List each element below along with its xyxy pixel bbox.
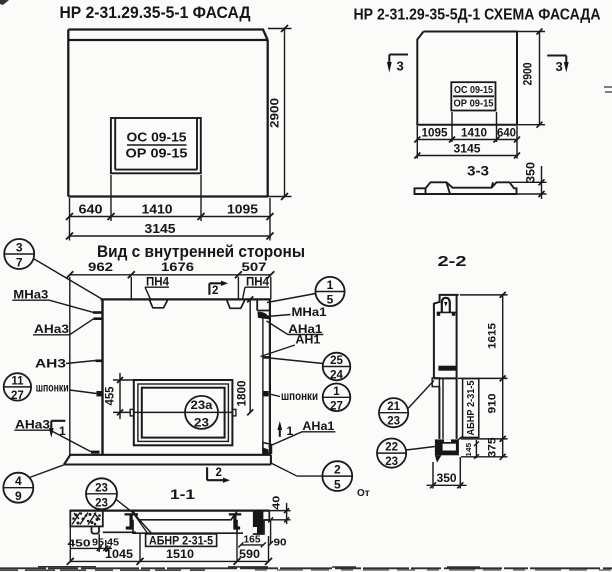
svg-text:21: 21 bbox=[387, 401, 400, 413]
svg-text:24: 24 bbox=[330, 370, 343, 382]
svg-text:23: 23 bbox=[95, 482, 108, 494]
svg-text:МНа3: МНа3 bbox=[13, 288, 48, 302]
svg-text:АН1: АН1 bbox=[295, 333, 320, 347]
svg-text:375: 375 bbox=[487, 438, 499, 458]
svg-text:455: 455 bbox=[105, 386, 117, 406]
svg-text:3: 3 bbox=[397, 59, 404, 74]
svg-text:1-1: 1-1 bbox=[170, 486, 195, 502]
svg-text:1: 1 bbox=[333, 386, 340, 398]
svg-text:1: 1 bbox=[59, 424, 66, 438]
svg-text:АНа3: АНа3 bbox=[15, 418, 50, 432]
svg-text:1410: 1410 bbox=[142, 203, 173, 217]
svg-text:1410: 1410 bbox=[461, 128, 487, 140]
svg-text:3-3: 3-3 bbox=[467, 163, 489, 179]
svg-text:23: 23 bbox=[95, 497, 108, 509]
svg-text:962: 962 bbox=[88, 260, 113, 274]
svg-text:23: 23 bbox=[387, 416, 400, 428]
svg-text:Вид с внутренней стороны: Вид с внутренней стороны bbox=[97, 243, 305, 261]
svg-text:25: 25 bbox=[330, 355, 343, 367]
svg-text:2: 2 bbox=[334, 463, 341, 477]
svg-text:11: 11 bbox=[11, 375, 24, 387]
svg-text:АНа3: АНа3 bbox=[34, 322, 69, 336]
svg-text:АБНР 2-31-5: АБНР 2-31-5 bbox=[465, 380, 477, 435]
svg-text:ОР 09-15: ОР 09-15 bbox=[454, 99, 494, 110]
svg-text:350: 350 bbox=[524, 162, 538, 183]
svg-text:40: 40 bbox=[271, 496, 283, 510]
svg-text:4: 4 bbox=[15, 474, 22, 488]
svg-text:1095: 1095 bbox=[422, 128, 449, 140]
svg-text:1510: 1510 bbox=[166, 549, 194, 561]
svg-text:3145: 3145 bbox=[454, 144, 482, 156]
svg-text:ОС 09-15: ОС 09-15 bbox=[454, 85, 493, 96]
svg-text:27: 27 bbox=[11, 390, 24, 402]
svg-text:шпонки: шпонки bbox=[36, 383, 69, 395]
svg-text:ОР 09-15: ОР 09-15 bbox=[126, 147, 188, 161]
svg-text:165: 165 bbox=[244, 535, 261, 546]
svg-text:От: От bbox=[357, 488, 370, 499]
svg-text:23: 23 bbox=[385, 456, 398, 468]
svg-text:22: 22 bbox=[385, 442, 398, 454]
svg-text:590: 590 bbox=[239, 549, 260, 561]
svg-text:640: 640 bbox=[79, 203, 103, 217]
svg-text:1615: 1615 bbox=[487, 323, 499, 349]
svg-text:2900: 2900 bbox=[268, 98, 282, 128]
svg-text:23а: 23а bbox=[191, 400, 214, 412]
svg-text:5: 5 bbox=[334, 478, 341, 492]
svg-text:ОС 09-15: ОС 09-15 bbox=[127, 131, 187, 145]
svg-text:95: 95 bbox=[92, 538, 104, 549]
svg-text:МНа1: МНа1 bbox=[292, 305, 327, 319]
svg-text:2: 2 bbox=[212, 285, 218, 297]
svg-text:5: 5 bbox=[327, 293, 334, 307]
svg-text:1: 1 bbox=[327, 278, 334, 292]
svg-text:НР 2-31.29-35-5Д-1 СХЕМА ФАСАД: НР 2-31.29-35-5Д-1 СХЕМА ФАСАДА bbox=[354, 7, 601, 24]
svg-text:640: 640 bbox=[497, 128, 516, 140]
svg-text:45: 45 bbox=[107, 538, 119, 549]
svg-text:АБНР 2-31-5: АБНР 2-31-5 bbox=[149, 536, 214, 548]
svg-text:507: 507 bbox=[242, 260, 267, 274]
svg-text:350: 350 bbox=[437, 473, 457, 485]
svg-text:шпонки: шпонки bbox=[281, 391, 318, 403]
svg-text:90: 90 bbox=[274, 537, 287, 549]
svg-text:9: 9 bbox=[15, 489, 22, 503]
svg-text:2900: 2900 bbox=[521, 62, 535, 85]
svg-text:3145: 3145 bbox=[145, 222, 176, 236]
svg-text:2: 2 bbox=[216, 467, 222, 479]
svg-text:23: 23 bbox=[194, 418, 209, 430]
svg-text:АН3: АН3 bbox=[35, 357, 66, 371]
svg-text:910: 910 bbox=[487, 394, 499, 414]
svg-text:2-2: 2-2 bbox=[438, 254, 467, 270]
svg-text:3: 3 bbox=[16, 241, 23, 255]
svg-text:145: 145 bbox=[466, 443, 473, 457]
svg-text:1095: 1095 bbox=[227, 203, 258, 217]
svg-text:1045: 1045 bbox=[105, 549, 134, 561]
svg-text:3: 3 bbox=[556, 59, 563, 74]
svg-text:27: 27 bbox=[330, 400, 343, 412]
svg-text:1676: 1676 bbox=[161, 260, 194, 274]
svg-text:7: 7 bbox=[16, 256, 23, 270]
svg-text:1800: 1800 bbox=[234, 380, 248, 406]
svg-text:НР 2-31.29.35-5-1 ФАСАД: НР 2-31.29.35-5-1 ФАСАД bbox=[60, 3, 251, 22]
svg-text:АНа1: АНа1 bbox=[302, 419, 334, 433]
